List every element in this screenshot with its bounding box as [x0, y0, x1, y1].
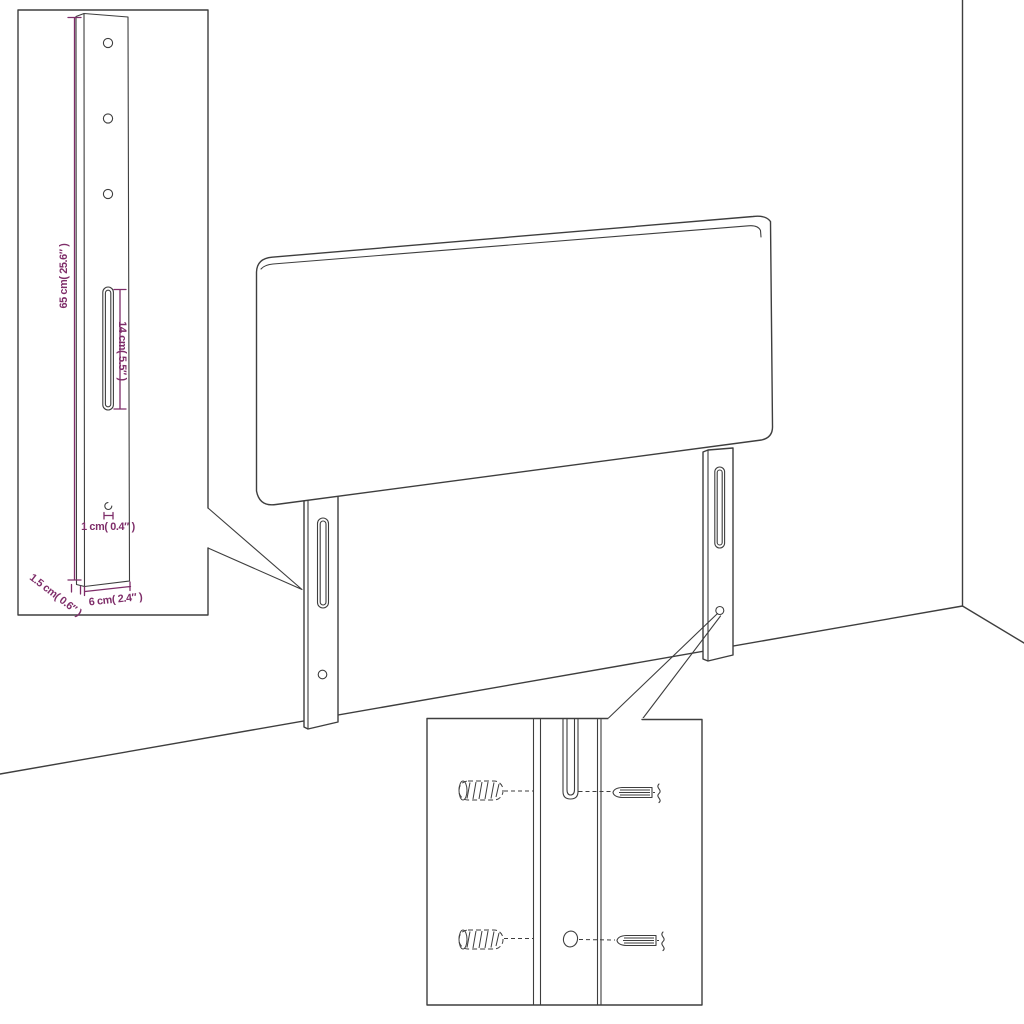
- hole-diameter-label: 1 cm( 0.4″ ): [81, 521, 136, 533]
- slot-length-label: 14 cm( 5.5″ ): [116, 321, 128, 381]
- right-leg: [703, 448, 733, 661]
- left-inset-callout: [208, 508, 302, 590]
- floor-line-right: [963, 606, 1024, 643]
- inset-leg-bracket: [76, 14, 130, 587]
- headboard-dimension-diagram: 65 cm( 25.6″ ) 14 cm( 5.5″ ) 1 cm( 0.4″ …: [0, 0, 1024, 1024]
- hardware-detail-inset: [427, 718, 702, 1005]
- diagram-canvas: 65 cm( 25.6″ ) 14 cm( 5.5″ ) 1 cm( 0.4″ …: [0, 0, 1024, 1024]
- left-leg: [304, 490, 338, 729]
- leg-height-label: 65 cm( 25.6″ ): [58, 243, 70, 309]
- hardware-inset-background: [427, 718, 702, 1005]
- leg-detail-inset: 65 cm( 25.6″ ) 14 cm( 5.5″ ) 1 cm( 0.4″ …: [18, 10, 208, 619]
- headboard-panel: [257, 216, 773, 505]
